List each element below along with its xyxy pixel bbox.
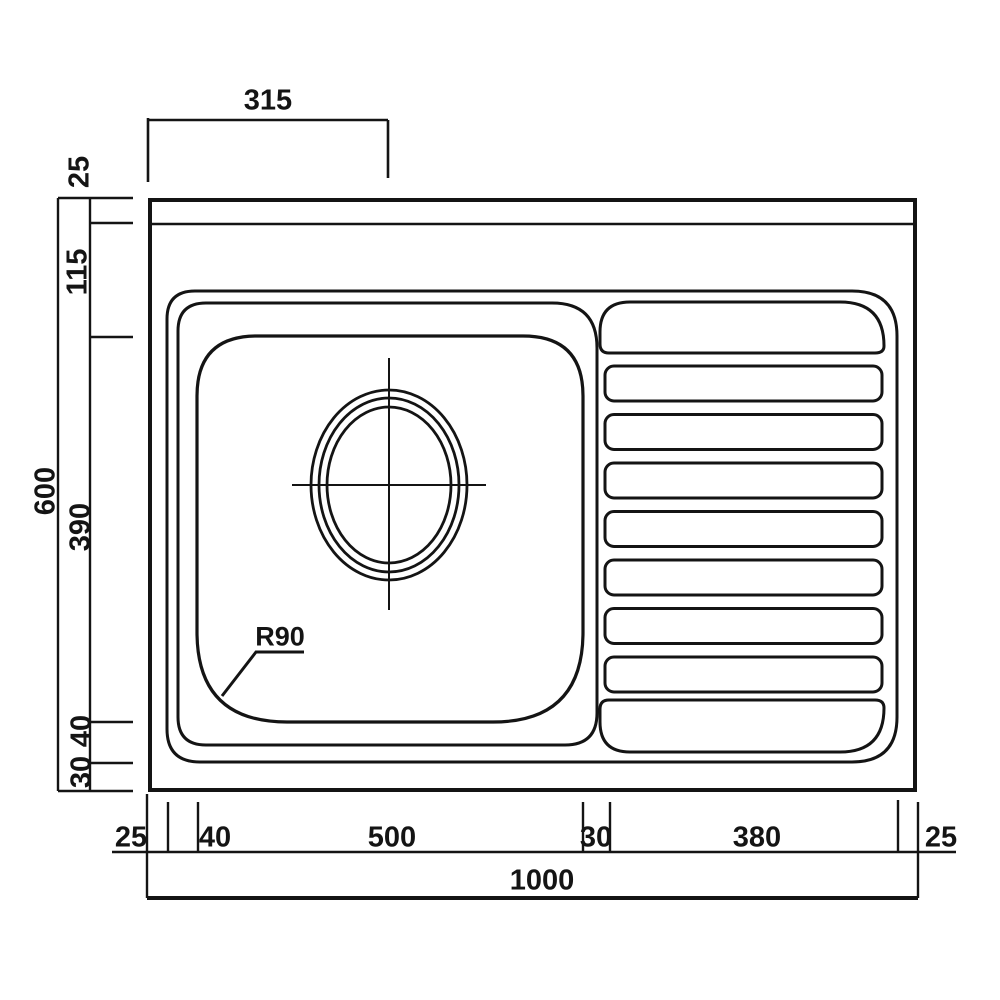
dim-bottom-flange-label: 40 xyxy=(199,824,231,853)
dim-left-bowl-label: 390 xyxy=(67,503,96,551)
dim-left-lower-label: 40 xyxy=(68,715,97,747)
dim-left-upper-label: 115 xyxy=(64,249,93,296)
dim-drain-offset-label: 315 xyxy=(244,87,292,116)
drainer-top-band xyxy=(600,302,884,353)
dim-bottom-right-edge-label: 25 xyxy=(925,824,957,853)
drainer-slat xyxy=(605,415,882,450)
drainer-ribs xyxy=(600,302,884,752)
dim-bottom-overall-label: 1000 xyxy=(510,867,575,896)
drainer-slat xyxy=(605,609,882,644)
dim-bottom-divider-label: 30 xyxy=(580,824,612,853)
drain-crosshair xyxy=(292,358,486,610)
drainer-slat xyxy=(605,463,882,498)
dim-bottom-bowl-label: 500 xyxy=(368,824,416,853)
dim-left-bottom-label: 30 xyxy=(68,756,97,788)
dim-left-overall-label: 600 xyxy=(32,467,61,515)
drawing-linework xyxy=(0,0,1000,1000)
dim-left-rim-label: 25 xyxy=(66,156,95,188)
radius-leader-line xyxy=(222,652,304,696)
sink-technical-drawing: 315 25 115 600 390 40 30 25 40 500 30 38… xyxy=(0,0,1000,1000)
radius-callout-label: R90 xyxy=(255,624,305,651)
drainer-slat xyxy=(605,512,882,547)
drainer-slat xyxy=(605,366,882,401)
top-dimension-lines xyxy=(148,118,388,182)
drainer-bottom-band xyxy=(600,700,884,752)
dim-bottom-left-edge-label: 25 xyxy=(115,824,147,853)
drainer-slat xyxy=(605,657,882,692)
dim-bottom-drainer-label: 380 xyxy=(733,824,781,853)
drainer-slat xyxy=(605,560,882,595)
